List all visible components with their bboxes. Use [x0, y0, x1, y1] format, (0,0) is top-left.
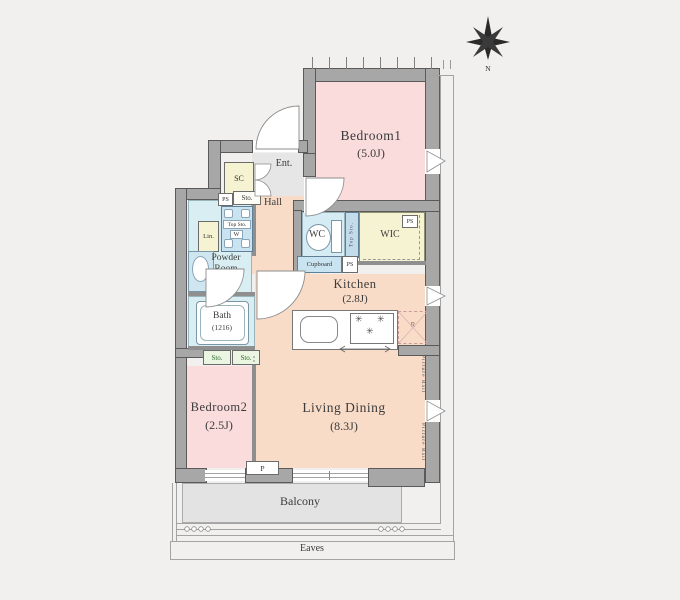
balcony-label: Balcony: [280, 494, 320, 509]
eaves-line-top-connector: [428, 75, 454, 76]
bedroom1-door-opening: [304, 177, 315, 213]
balcony-rail-left-post: [172, 483, 173, 541]
washer-top-storage-label: Top Sto.: [223, 220, 251, 229]
kitchen-label: Kitchen: [333, 277, 376, 292]
picture-rail-label: Picture Rail: [420, 423, 426, 461]
kitchen-sink: [300, 316, 338, 343]
wall: [293, 200, 440, 212]
burner-icon: ✳: [355, 314, 363, 325]
hatch-tick: [443, 60, 444, 69]
living-dining-label: Living Dining: [302, 400, 385, 416]
bath-label: Bath: [213, 311, 231, 321]
wall: [425, 421, 440, 483]
shoe-closet: SC: [224, 162, 254, 194]
eaves-label: Eaves: [300, 543, 324, 554]
powder-room-label-2: Room: [214, 264, 237, 274]
window-line: [293, 473, 368, 474]
partition: [188, 292, 255, 296]
floor-plan: SC Sto. PS Lin. Top Sto. W Sto. Sto. Top…: [0, 0, 680, 600]
living-dining-window: [293, 470, 368, 481]
toilet-top-storage: Top Sto.: [345, 212, 359, 258]
washer-label: W: [230, 230, 243, 239]
hatch-tick: [431, 57, 432, 69]
window-line: [205, 477, 245, 478]
entrance-label: Ent.: [276, 158, 292, 169]
wic-label: WIC: [380, 229, 399, 240]
pipe-space: PS: [402, 215, 418, 228]
balcony-rail-left-post: [176, 483, 177, 541]
bedroom2-window: [205, 470, 245, 481]
hall-label: Hall: [264, 197, 282, 208]
bath-size: (1216): [212, 323, 232, 332]
balcony-rail-line: [176, 535, 454, 536]
eaves-line-right-inner: [440, 75, 441, 524]
living-side-window: [425, 400, 440, 422]
bedroom2-size: (2.5J): [205, 418, 233, 433]
refrigerator-label: R: [411, 321, 416, 329]
wall: [425, 173, 440, 287]
bath-storage-right: Sto.: [232, 350, 260, 365]
eaves-line-right-outer: [453, 75, 454, 542]
eaves-strip-left: [170, 541, 171, 559]
living-dining-size: (8.3J): [330, 419, 358, 434]
eaves-strip-top: [170, 541, 455, 542]
washer-drum: [224, 239, 233, 248]
wall: [303, 153, 316, 177]
partition: [358, 261, 426, 265]
kitchen-size: (2.8J): [342, 293, 367, 305]
wall: [368, 468, 425, 487]
eaves-strip-right: [454, 541, 455, 559]
window-line: [205, 473, 245, 474]
wall: [425, 68, 440, 152]
pipe-space: PS: [218, 193, 233, 206]
kitchen-side-window: [425, 286, 440, 306]
wall: [298, 140, 308, 153]
powder-room-label-1: Powder: [211, 253, 240, 263]
washbasin-bowl: [192, 256, 209, 282]
washer-drum: [241, 209, 250, 218]
compass-icon: [466, 16, 510, 60]
bedroom1-label: Bedroom1: [341, 128, 402, 144]
picture-rail-label: Picture Rail: [420, 355, 426, 393]
wall: [175, 468, 207, 483]
eaves-strip-bottom: [170, 559, 455, 560]
hatch-tick: [380, 57, 381, 69]
hatch-tick: [363, 57, 364, 69]
hatch-tick: [312, 57, 313, 69]
partition: [252, 350, 256, 470]
bedroom1-side-window: [425, 149, 440, 174]
wall: [303, 68, 440, 82]
balcony-rail-line: [176, 523, 441, 524]
hatch-tick: [346, 57, 347, 69]
hatch-tick: [329, 57, 330, 69]
cupboard: Cupboard: [297, 256, 342, 273]
balcony-rail-line: [176, 529, 441, 530]
wc-label: WC: [309, 229, 325, 240]
hatch-tick: [450, 60, 451, 69]
bedroom2-floor: [187, 366, 252, 468]
window-line: [293, 477, 368, 478]
toilet-tank: [331, 220, 342, 253]
entry-storage: Sto.: [233, 191, 261, 205]
bath-storage-left: Sto.: [203, 350, 231, 365]
compass-north-label: N: [485, 64, 490, 73]
burner-icon: ✳: [377, 314, 385, 325]
wall: [175, 188, 187, 480]
bedroom1-size: (5.0J): [357, 146, 385, 161]
wall: [398, 345, 440, 356]
burner-icon: ✳: [366, 326, 374, 337]
window-mullion: [329, 471, 330, 480]
hatch-tick: [414, 57, 415, 69]
washer-drum: [241, 239, 250, 248]
pipe-space: PS: [342, 256, 358, 273]
bedroom2-label: Bedroom2: [191, 400, 248, 415]
washer-drum: [224, 209, 233, 218]
linen-storage: Lin.: [198, 221, 219, 252]
pillar: P: [246, 461, 279, 475]
front-door-opening: [253, 141, 298, 152]
living-dining-kitchen-floor: [255, 274, 425, 468]
hatch-tick: [397, 57, 398, 69]
